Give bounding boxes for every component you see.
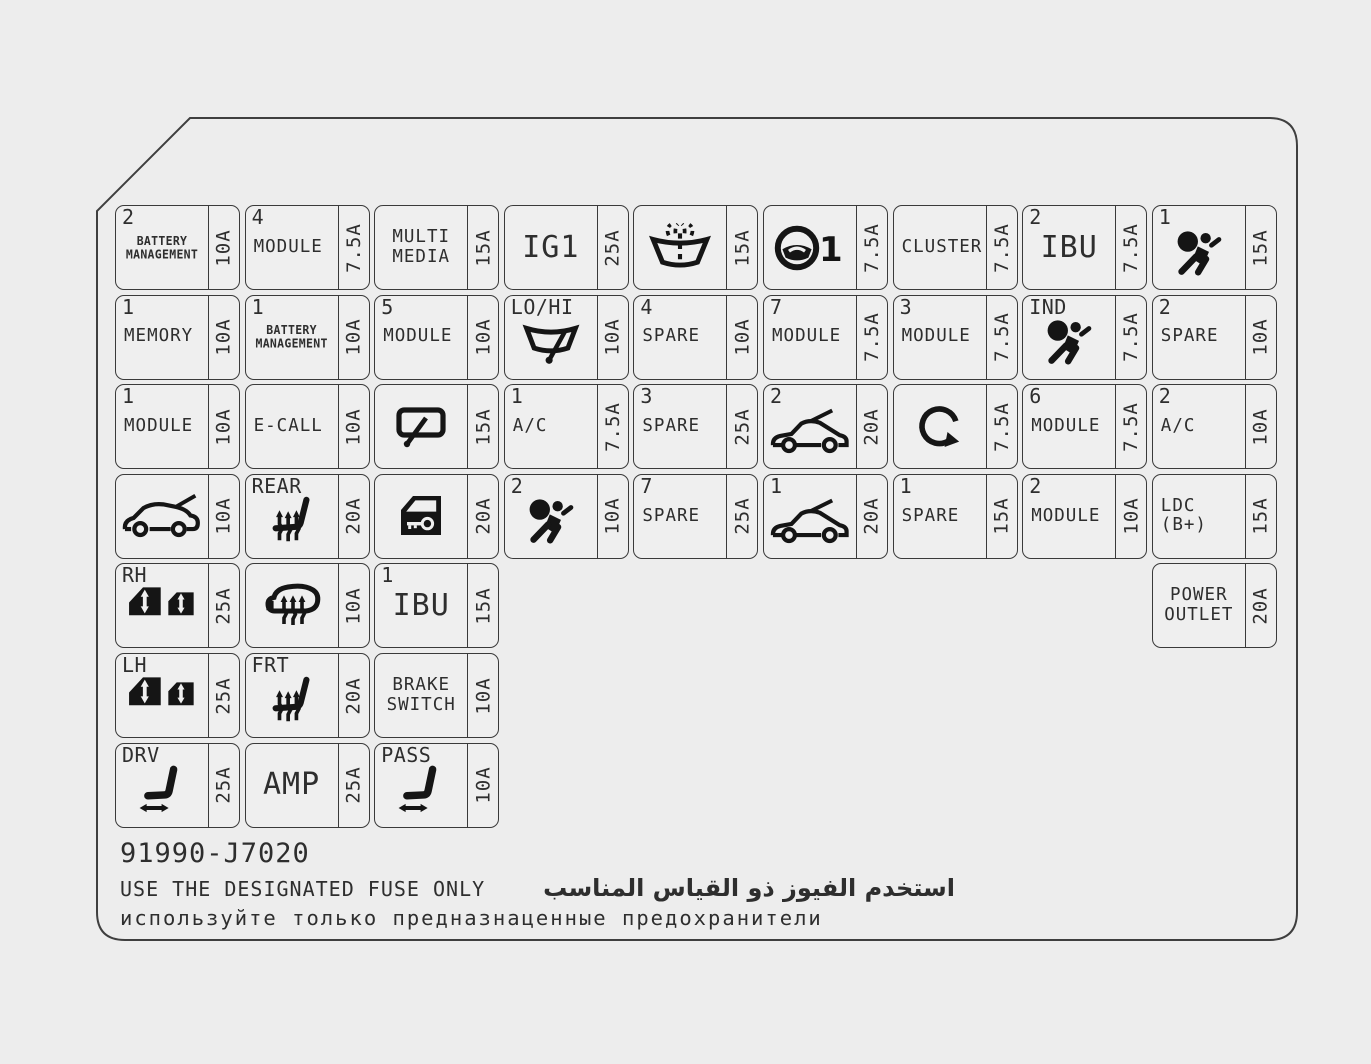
airbag-icon	[1042, 316, 1096, 370]
fuse-cell-content: 2MODULE	[1023, 475, 1115, 558]
amp-rating: 10A	[208, 475, 239, 558]
fuse-cell-content: 1	[764, 206, 856, 289]
amp-rating-value: 15A	[731, 229, 753, 266]
fuse-cell-content: 1SPARE	[894, 475, 986, 558]
fuse-number: 2	[1029, 206, 1042, 228]
fuse-label: IG1	[522, 231, 579, 265]
fuse-cell-r2c5: 4SPARE10A	[633, 295, 758, 380]
fuse-cell-content	[246, 564, 338, 647]
fuse-cell-r2c7: 3MODULE7.5A	[893, 295, 1018, 380]
fuse-number: PASS	[381, 744, 431, 766]
amp-rating-value: 15A	[472, 408, 494, 445]
fuse-number: 6	[1029, 385, 1042, 407]
heated-seat-icon	[267, 676, 317, 728]
fuse-cell-r4c7: 1SPARE15A	[893, 474, 1018, 559]
fuse-number: 1	[381, 564, 394, 586]
fuse-cell-content: 5MODULE	[375, 296, 467, 379]
fuse-cell-r1c9: 1 15A	[1152, 205, 1277, 290]
amp-rating: 10A	[208, 206, 239, 289]
amp-rating-value: 10A	[1120, 498, 1142, 535]
warning-line: USE THE DESIGNATED FUSE ONLY استخدم الفي…	[120, 874, 955, 902]
warning-english: USE THE DESIGNATED FUSE ONLY	[120, 877, 485, 901]
part-number: 91990-J7020	[120, 838, 955, 869]
door-key-icon	[395, 490, 447, 542]
fuse-cell-r3c5: 3SPARE25A	[633, 384, 758, 469]
amp-rating: 7.5A	[986, 385, 1017, 468]
amp-rating-value: 20A	[343, 498, 365, 535]
fuse-cell-content: 7SPARE	[634, 475, 726, 558]
fuse-number: IND	[1029, 296, 1067, 318]
amp-rating-value: 10A	[343, 408, 365, 445]
fuse-label: SPARE	[902, 507, 960, 527]
amp-rating: 15A	[467, 564, 498, 647]
fuse-label: IBU	[1041, 231, 1098, 265]
fuse-cell-r3c8: 6MODULE7.5A	[1022, 384, 1147, 469]
fuse-cell-content: 1	[1153, 206, 1245, 289]
amp-rating-value: 25A	[602, 229, 624, 266]
fuse-number: 1	[122, 385, 135, 407]
fuse-cell-r1c4: IG125A	[504, 205, 629, 290]
amp-rating-value: 7.5A	[1120, 402, 1142, 452]
fuse-label: MODULE	[1031, 417, 1100, 437]
fuse-number: 1	[900, 475, 913, 497]
fuse-cell-r1c2: 4MODULE7.5A	[245, 205, 370, 290]
fuse-cell-r4c5: 7SPARE25A	[633, 474, 758, 559]
fuse-cell-content: 1MEMORY	[116, 296, 208, 379]
amp-rating-value: 10A	[343, 318, 365, 355]
fuse-cell-content	[634, 206, 726, 289]
fuse-cell-r3c7: 7.5A	[893, 384, 1018, 469]
amp-rating-value: 10A	[1250, 408, 1272, 445]
amp-rating: 15A	[467, 385, 498, 468]
amp-rating: 25A	[726, 385, 757, 468]
fuse-cell-r3c3: 15A	[374, 384, 499, 469]
fuse-cell-r7c3: PASS 10A	[374, 743, 499, 828]
footer: 91990-J7020 USE THE DESIGNATED FUSE ONLY…	[120, 838, 955, 930]
fuse-label: MODULE	[124, 417, 193, 437]
fuse-number: 2	[122, 206, 135, 228]
amp-rating: 20A	[338, 475, 369, 558]
fuse-cell-r1c6: 1 7.5A	[763, 205, 888, 290]
fuse-label: MEMORY	[124, 327, 193, 347]
fuse-cell-content	[116, 475, 208, 558]
fuse-cell-r5c3: 1IBU15A	[374, 563, 499, 648]
fuse-cell-r2c1: 1MEMORY10A	[115, 295, 240, 380]
fuse-cell-content: DRV	[116, 744, 208, 827]
amp-rating: 25A	[208, 654, 239, 737]
fuse-cell-content: RH	[116, 564, 208, 647]
fuse-number: REAR	[252, 475, 302, 497]
fuse-cell-content: 2BATTERY MANAGEMENT	[116, 206, 208, 289]
amp-rating-value: 10A	[213, 498, 235, 535]
amp-rating: 10A	[467, 654, 498, 737]
fuse-cell-content: 2	[764, 385, 856, 468]
fuse-box-diagram: { "page": { "background": "#ededed", "li…	[0, 0, 1371, 1064]
fuse-cell-r7c2: AMP25A	[245, 743, 370, 828]
amp-rating-value: 20A	[472, 498, 494, 535]
heated-seat-icon	[267, 496, 317, 548]
amp-rating: 10A	[1245, 296, 1276, 379]
amp-rating: 7.5A	[1115, 206, 1146, 289]
amp-rating: 7.5A	[986, 296, 1017, 379]
amp-rating: 7.5A	[1115, 296, 1146, 379]
wiper-windshield-icon	[521, 319, 581, 368]
washer-windshield-icon	[647, 223, 713, 273]
fuse-label: SPARE	[642, 417, 700, 437]
fuse-label: BATTERY MANAGEMENT	[255, 324, 327, 351]
fuse-cell-r2c2: 1BATTERY MANAGEMENT10A	[245, 295, 370, 380]
amp-rating: 20A	[856, 385, 887, 468]
amp-rating-value: 15A	[991, 498, 1013, 535]
fuse-number: 4	[640, 296, 653, 318]
amp-rating-value: 10A	[343, 587, 365, 624]
amp-rating: 10A	[467, 744, 498, 827]
fuse-number: 2	[1029, 475, 1042, 497]
fuse-cell-r3c2: E-CALL10A	[245, 384, 370, 469]
amp-rating-value: 15A	[1250, 229, 1272, 266]
fuse-cell-r2c8: IND 7.5A	[1022, 295, 1147, 380]
amp-rating-value: 25A	[213, 677, 235, 714]
amp-rating: 25A	[208, 564, 239, 647]
fuse-cell-content: LDC (B+)	[1153, 475, 1245, 558]
fuse-cell-r4c9: LDC (B+)15A	[1152, 474, 1277, 559]
amp-rating-value: 20A	[343, 677, 365, 714]
amp-rating-value: 7.5A	[991, 223, 1013, 273]
amp-rating: 20A	[1245, 564, 1276, 647]
amp-rating-value: 25A	[731, 408, 753, 445]
fuse-cell-r2c4: LO/HI 10A	[504, 295, 629, 380]
fuse-cell-r3c6: 2 20A	[763, 384, 888, 469]
fuse-cell-r4c1: 10A	[115, 474, 240, 559]
heated-mirror-icon	[262, 579, 322, 633]
fuse-cell-r7c1: DRV 25A	[115, 743, 240, 828]
fuse-cell-content: PASS	[375, 744, 467, 827]
amp-rating-value: 25A	[731, 498, 753, 535]
amp-rating: 10A	[338, 296, 369, 379]
warning-russian: используйте только предназнаценные предо…	[120, 906, 955, 930]
warning-arabic: استخدم الفيوز ذو القياس المناسب	[543, 874, 955, 902]
fuse-label: MULTI MEDIA	[392, 228, 450, 267]
fuse-cell-content: MULTI MEDIA	[375, 206, 467, 289]
power-windows-icon	[124, 671, 200, 732]
fuse-label: A/C	[1161, 417, 1196, 437]
fuse-cell-content: 2SPARE	[1153, 296, 1245, 379]
fuse-number: 1	[1159, 206, 1172, 228]
fuse-number: 3	[900, 296, 913, 318]
amp-rating: 15A	[726, 206, 757, 289]
fuse-cell-content: AMP	[246, 744, 338, 827]
fuse-cell-content: 7MODULE	[764, 296, 856, 379]
fuse-cell-content: 3MODULE	[894, 296, 986, 379]
fuse-number: 2	[770, 385, 783, 407]
amp-rating: 7.5A	[986, 206, 1017, 289]
fuse-cell-content: REAR	[246, 475, 338, 558]
fuse-label: MODULE	[1031, 507, 1100, 527]
amp-rating: 10A	[597, 475, 628, 558]
fuse-number: 2	[1159, 296, 1172, 318]
fuse-cell-r4c6: 1 20A	[763, 474, 888, 559]
amp-rating: 20A	[338, 654, 369, 737]
svg-text:1: 1	[819, 230, 843, 270]
amp-rating: 20A	[856, 475, 887, 558]
fuse-cell-content: 1BATTERY MANAGEMENT	[246, 296, 338, 379]
steering-wheel-icon: 1	[774, 224, 846, 272]
fuse-cell-content: 1MODULE	[116, 385, 208, 468]
amp-rating: 10A	[1245, 385, 1276, 468]
amp-rating-value: 7.5A	[991, 312, 1013, 362]
amp-rating-value: 10A	[213, 408, 235, 445]
fuse-cell-content: 1IBU	[375, 564, 467, 647]
amp-rating: 25A	[597, 206, 628, 289]
amp-rating-value: 10A	[1250, 318, 1272, 355]
amp-rating-value: 15A	[472, 587, 494, 624]
amp-rating: 10A	[1115, 475, 1146, 558]
fuse-number: 1	[770, 475, 783, 497]
fuse-label: MODULE	[383, 327, 452, 347]
amp-rating-value: 15A	[1250, 498, 1272, 535]
fuse-cell-r5c2: 10A	[245, 563, 370, 648]
fuse-cell-content	[375, 475, 467, 558]
amp-rating-value: 7.5A	[861, 312, 883, 362]
fuse-cell-r2c3: 5MODULE10A	[374, 295, 499, 380]
fuse-cell-content: 1	[764, 475, 856, 558]
fuse-number: 1	[252, 296, 265, 318]
fuse-cell-r3c4: 1A/C7.5A	[504, 384, 629, 469]
power-windows-icon	[124, 581, 200, 642]
fuse-cell-r6c2: FRT 20A	[245, 653, 370, 738]
fuse-number: 4	[252, 206, 265, 228]
fuse-cell-content: 2IBU	[1023, 206, 1115, 289]
amp-rating: 7.5A	[856, 296, 887, 379]
fuse-cell-content	[375, 385, 467, 468]
fuse-label: MODULE	[902, 327, 971, 347]
fuse-cell-r2c6: 7MODULE7.5A	[763, 295, 888, 380]
fuse-label: SPARE	[642, 327, 700, 347]
fuse-label: A/C	[513, 417, 548, 437]
fuse-number: 2	[511, 475, 524, 497]
fuse-label: AMP	[263, 768, 320, 802]
car-hood-icon	[768, 498, 852, 547]
fuse-cell-r4c3: 20A	[374, 474, 499, 559]
amp-rating-value: 10A	[472, 766, 494, 803]
fuse-number: LO/HI	[511, 296, 574, 318]
fuse-number: 1	[122, 296, 135, 318]
amp-rating-value: 10A	[213, 229, 235, 266]
fuse-label: E-CALL	[254, 417, 323, 437]
fuse-cell-r4c4: 2 10A	[504, 474, 629, 559]
fuse-number: FRT	[252, 654, 290, 676]
fuse-cell-content: LH	[116, 654, 208, 737]
fuse-cell-r1c7: CLUSTER7.5A	[893, 205, 1018, 290]
amp-rating-value: 25A	[213, 587, 235, 624]
airbag-icon	[524, 495, 578, 549]
fuse-cell-content: IG1	[505, 206, 597, 289]
power-seat-icon	[135, 764, 189, 818]
amp-rating-value: 20A	[1250, 587, 1272, 624]
amp-rating-value: 7.5A	[1120, 312, 1142, 362]
fuse-cell-r2c9: 2SPARE10A	[1152, 295, 1277, 380]
fuse-number: 1	[511, 385, 524, 407]
fuse-cell-content: BRAKE SWITCH	[375, 654, 467, 737]
airbag-icon	[1172, 227, 1226, 281]
fuse-cell-r5c1: RH 25A	[115, 563, 240, 648]
fuse-number: DRV	[122, 744, 160, 766]
fuse-cell-content: CLUSTER	[894, 206, 986, 289]
amp-rating: 10A	[208, 296, 239, 379]
fuse-label: MODULE	[772, 327, 841, 347]
amp-rating: 7.5A	[1115, 385, 1146, 468]
fuse-number: LH	[122, 654, 147, 676]
fuse-label: BRAKE SWITCH	[387, 676, 456, 715]
amp-rating-value: 7.5A	[991, 402, 1013, 452]
fuse-cell-content: 2	[505, 475, 597, 558]
amp-rating-value: 25A	[343, 766, 365, 803]
amp-rating: 7.5A	[338, 206, 369, 289]
fuse-cell-r1c3: MULTI MEDIA15A	[374, 205, 499, 290]
amp-rating-value: 10A	[602, 498, 624, 535]
fuse-label: IBU	[393, 589, 450, 623]
fuse-cell-r6c1: LH 25A	[115, 653, 240, 738]
amp-rating: 10A	[338, 564, 369, 647]
fuse-label: POWER OUTLET	[1164, 586, 1233, 625]
amp-rating: 10A	[467, 296, 498, 379]
car-hood-icon	[768, 408, 852, 457]
amp-rating: 15A	[467, 206, 498, 289]
car-tailgate-icon	[120, 492, 204, 541]
fuse-cell-content: 2A/C	[1153, 385, 1245, 468]
fuse-cell-r1c8: 2IBU7.5A	[1022, 205, 1147, 290]
fuse-cell-content: IND	[1023, 296, 1115, 379]
fuse-label: SPARE	[642, 507, 700, 527]
amp-rating: 10A	[597, 296, 628, 379]
fuse-cell-content: LO/HI	[505, 296, 597, 379]
power-seat-icon	[394, 764, 448, 818]
fuse-cell-r6c3: BRAKE SWITCH10A	[374, 653, 499, 738]
amp-rating: 25A	[208, 744, 239, 827]
fuse-cell-content	[894, 385, 986, 468]
amp-rating: 25A	[726, 475, 757, 558]
fuse-cell-content: 4SPARE	[634, 296, 726, 379]
amp-rating-value: 7.5A	[602, 402, 624, 452]
fuse-label: LDC (B+)	[1161, 497, 1245, 536]
amp-rating-value: 7.5A	[343, 223, 365, 273]
amp-rating: 10A	[208, 385, 239, 468]
amp-rating-value: 10A	[472, 318, 494, 355]
amp-rating: 15A	[1245, 206, 1276, 289]
circular-arrow-icon	[915, 402, 965, 452]
amp-rating-value: 7.5A	[861, 223, 883, 273]
fuse-label: CLUSTER	[902, 238, 983, 258]
fuse-cell-content: 3SPARE	[634, 385, 726, 468]
amp-rating-value: 10A	[213, 318, 235, 355]
fuse-cell-r4c2: REAR 20A	[245, 474, 370, 559]
amp-rating-value: 10A	[602, 318, 624, 355]
amp-rating-value: 15A	[472, 229, 494, 266]
fuse-number: 7	[770, 296, 783, 318]
fuse-number: RH	[122, 564, 147, 586]
fuse-cell-content: POWER OUTLET	[1153, 564, 1245, 647]
fuse-grid: 2BATTERY MANAGEMENT10A4MODULE7.5AMULTI M…	[115, 205, 1287, 833]
fuse-label: BATTERY MANAGEMENT	[126, 234, 198, 261]
amp-rating: 15A	[1245, 475, 1276, 558]
fuse-cell-r1c1: 2BATTERY MANAGEMENT10A	[115, 205, 240, 290]
fuse-cell-content: 6MODULE	[1023, 385, 1115, 468]
fuse-cell-content: E-CALL	[246, 385, 338, 468]
fuse-cell-r3c1: 1MODULE10A	[115, 384, 240, 469]
amp-rating: 20A	[467, 475, 498, 558]
fuse-cell-content: 4MODULE	[246, 206, 338, 289]
fuse-cell-r4c8: 2MODULE10A	[1022, 474, 1147, 559]
amp-rating: 10A	[726, 296, 757, 379]
fuse-label: MODULE	[254, 238, 323, 258]
fuse-cell-r3c9: 2A/C10A	[1152, 384, 1277, 469]
amp-rating-value: 25A	[213, 766, 235, 803]
amp-rating-value: 10A	[731, 318, 753, 355]
amp-rating: 15A	[986, 475, 1017, 558]
fuse-cell-content: 1A/C	[505, 385, 597, 468]
fuse-label: SPARE	[1161, 327, 1219, 347]
amp-rating: 7.5A	[597, 385, 628, 468]
fuse-number: 5	[381, 296, 394, 318]
fuse-number: 3	[640, 385, 653, 407]
rear-wiper-icon	[393, 403, 449, 451]
amp-rating-value: 7.5A	[1120, 223, 1142, 273]
amp-rating: 10A	[338, 385, 369, 468]
fuse-cell-content: FRT	[246, 654, 338, 737]
fuse-cell-r1c5: 15A	[633, 205, 758, 290]
amp-rating-value: 10A	[472, 677, 494, 714]
amp-rating: 7.5A	[856, 206, 887, 289]
fuse-cell-r5c9: POWER OUTLET20A	[1152, 563, 1277, 648]
amp-rating-value: 20A	[861, 498, 883, 535]
amp-rating-value: 20A	[861, 408, 883, 445]
fuse-number: 7	[640, 475, 653, 497]
fuse-number: 2	[1159, 385, 1172, 407]
amp-rating: 25A	[338, 744, 369, 827]
